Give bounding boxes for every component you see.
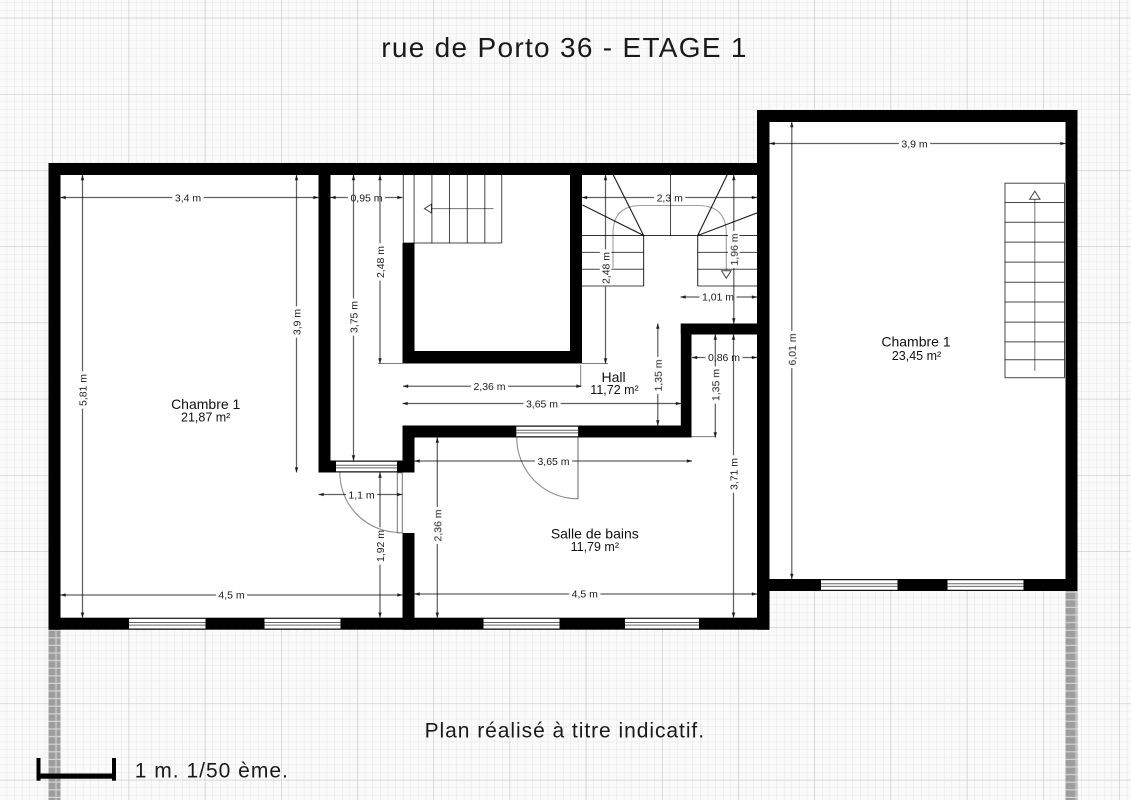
svg-text:2,3 m: 2,3 m bbox=[657, 192, 684, 204]
svg-text:2,36 m: 2,36 m bbox=[473, 381, 505, 393]
svg-text:3,9 m: 3,9 m bbox=[901, 138, 928, 150]
svg-text:3,71 m: 3,71 m bbox=[728, 458, 740, 490]
svg-text:1,96 m: 1,96 m bbox=[729, 233, 741, 265]
svg-text:1,01 m: 1,01 m bbox=[702, 291, 734, 303]
svg-text:6,01 m: 6,01 m bbox=[787, 333, 799, 365]
svg-text:3,75 m: 3,75 m bbox=[348, 301, 360, 333]
svg-text:1,35 m: 1,35 m bbox=[653, 359, 665, 391]
svg-text:0,86 m: 0,86 m bbox=[708, 352, 740, 364]
svg-text:3,4 m: 3,4 m bbox=[175, 192, 202, 204]
svg-text:4,5 m: 4,5 m bbox=[218, 590, 245, 602]
svg-text:3,65 m: 3,65 m bbox=[526, 398, 558, 410]
svg-text:1 m. 1/50 ème.: 1 m. 1/50 ème. bbox=[135, 760, 289, 783]
svg-text:4,5 m: 4,5 m bbox=[572, 589, 599, 601]
svg-text:rue de Porto 36 - ETAGE 1: rue de Porto 36 - ETAGE 1 bbox=[381, 32, 748, 63]
svg-text:2,36 m: 2,36 m bbox=[432, 509, 444, 541]
svg-text:2,48 m: 2,48 m bbox=[375, 246, 387, 278]
svg-text:2,48 m: 2,48 m bbox=[600, 252, 612, 284]
svg-text:11,79 m²: 11,79 m² bbox=[571, 540, 619, 554]
svg-text:1,35 m: 1,35 m bbox=[710, 369, 722, 401]
svg-text:3,9 m: 3,9 m bbox=[291, 309, 303, 336]
svg-text:Chambre 1: Chambre 1 bbox=[881, 334, 950, 350]
svg-text:11,72 m²: 11,72 m² bbox=[590, 383, 638, 397]
svg-text:0,95 m: 0,95 m bbox=[350, 192, 382, 204]
svg-text:21,87 m²: 21,87 m² bbox=[181, 410, 230, 424]
svg-text:1,92 m: 1,92 m bbox=[375, 530, 387, 562]
svg-text:23,45 m²: 23,45 m² bbox=[892, 349, 941, 363]
svg-text:Plan réalisé à titre indicatif: Plan réalisé à titre indicatif. bbox=[425, 720, 705, 743]
svg-text:Salle de bains: Salle de bains bbox=[551, 525, 639, 541]
svg-text:5,81 m: 5,81 m bbox=[77, 374, 89, 406]
svg-text:1,1 m: 1,1 m bbox=[348, 489, 375, 501]
svg-text:3,65 m: 3,65 m bbox=[537, 456, 569, 468]
